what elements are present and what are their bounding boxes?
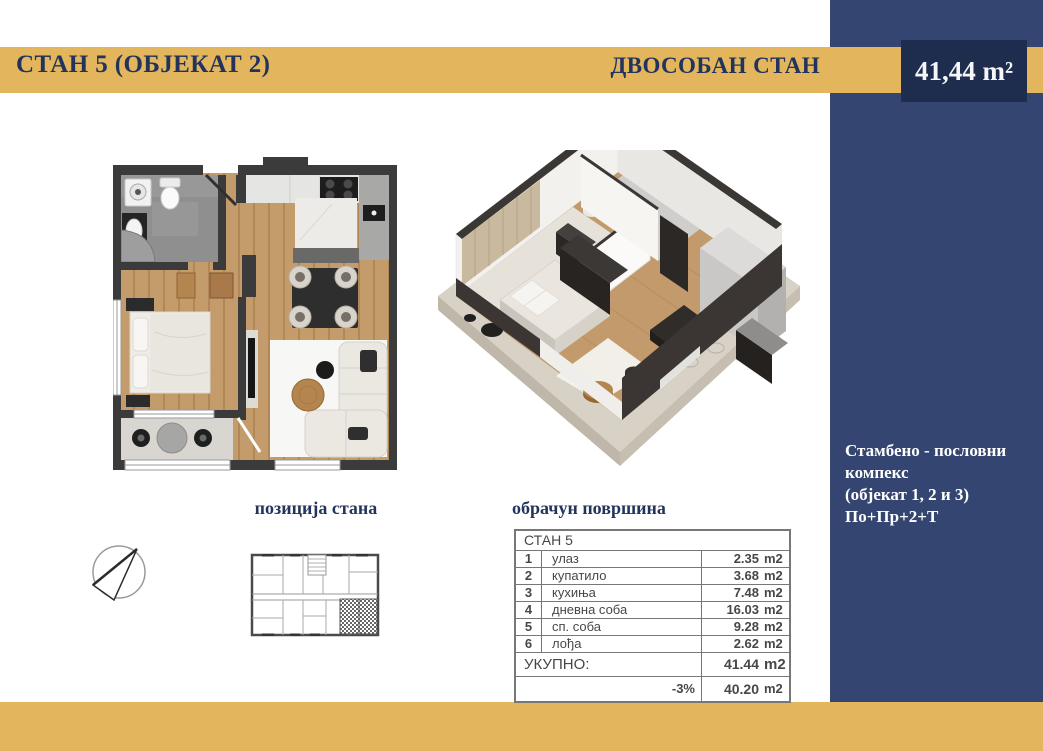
north-arrow-icon	[85, 540, 155, 610]
row-number: 5	[516, 619, 542, 635]
row-label: дневна соба	[542, 602, 701, 618]
footer-band	[0, 702, 1043, 751]
floorplan-2d	[113, 155, 397, 471]
row-unit: m2	[759, 585, 789, 601]
row-unit: m2	[759, 568, 789, 584]
page-title: СТАН 5 (ОБЈЕКАТ 2)	[16, 51, 270, 79]
complex-line: (објекат 1, 2 и 3)	[845, 484, 1033, 506]
table-row: 5 сп. соба 9.28 m2	[516, 619, 789, 636]
complex-line: Стамбено - пословни	[845, 440, 1033, 462]
brochure-page: { "colors": { "gold": "#E3B55C", "blue_c…	[0, 0, 1043, 751]
row-number: 4	[516, 602, 542, 618]
complex-line: По+Пр+2+Т	[845, 506, 1033, 528]
table-row: 2 купатило 3.68 m2	[516, 568, 789, 585]
calculation-section-title: обрачун површина	[512, 498, 666, 519]
position-section-title: позиција стана	[238, 498, 394, 519]
right-sidebar-band	[830, 0, 1043, 702]
row-value: 2.62	[701, 636, 759, 652]
row-number: 2	[516, 568, 542, 584]
areas-table: СТАН 5 1 улаз 2.35 m2 2 купатило 3.68 m2…	[514, 529, 791, 703]
row-number: 3	[516, 585, 542, 601]
apartment-type-title: ДВОСОБАН СТАН	[500, 53, 820, 79]
row-value: 9.28	[701, 619, 759, 635]
reduced-value: 40.20	[701, 677, 759, 701]
building-position-plan	[246, 549, 384, 643]
complex-description: Стамбено - пословни компекс (објекат 1, …	[845, 440, 1033, 528]
row-label: кухиња	[542, 585, 701, 601]
row-unit: m2	[759, 636, 789, 652]
row-value: 2.35	[701, 551, 759, 567]
table-row: 4 дневна соба 16.03 m2	[516, 602, 789, 619]
table-row: 3 кухиња 7.48 m2	[516, 585, 789, 602]
area-value: 41,44 m²	[915, 56, 1013, 87]
row-value: 3.68	[701, 568, 759, 584]
total-value: 41.44	[701, 653, 759, 676]
row-label: сп. соба	[542, 619, 701, 635]
table-row: 6 лођа 2.62 m2	[516, 636, 789, 653]
floorplan-3d	[430, 150, 825, 480]
row-number: 1	[516, 551, 542, 567]
total-unit: m2	[759, 653, 789, 676]
area-badge: 41,44 m²	[901, 40, 1027, 102]
areas-table-title: СТАН 5	[516, 531, 789, 551]
row-unit: m2	[759, 602, 789, 618]
row-number: 6	[516, 636, 542, 652]
row-label: купатило	[542, 568, 701, 584]
row-value: 16.03	[701, 602, 759, 618]
table-total-row: УКУПНО: 41.44 m2	[516, 653, 789, 677]
table-row: 1 улаз 2.35 m2	[516, 551, 789, 568]
row-unit: m2	[759, 619, 789, 635]
row-unit: m2	[759, 551, 789, 567]
row-label: лођа	[542, 636, 701, 652]
reduced-label: -3%	[516, 677, 701, 701]
total-label: УКУПНО:	[516, 653, 701, 676]
row-label: улаз	[542, 551, 701, 567]
table-reduced-row: -3% 40.20 m2	[516, 677, 789, 701]
complex-line: компекс	[845, 462, 1033, 484]
reduced-unit: m2	[759, 677, 789, 701]
row-value: 7.48	[701, 585, 759, 601]
